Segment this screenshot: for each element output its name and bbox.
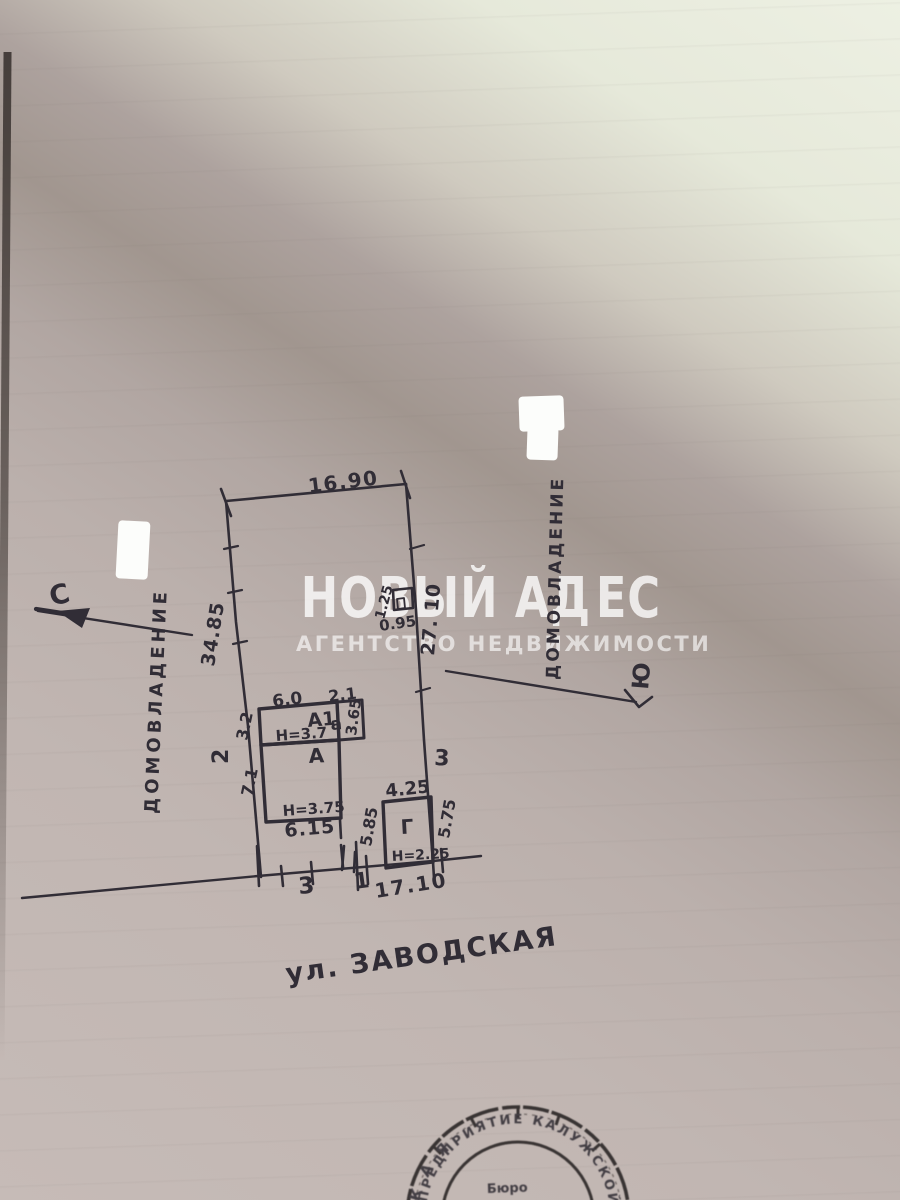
label-owner-right: ДОМОВЛАДЕНИЕ xyxy=(543,476,568,680)
photographed-plan-document: НОВЫЙ АД ЕС АГЕНТСТВО НЕДВИЖИМОСТИ xyxy=(0,0,900,1200)
label-neighbor-right-number: 3 xyxy=(434,746,450,772)
dim-g-right: 5.75 xyxy=(434,798,460,840)
label-owner-left: ДОМОВЛАДЕНИЕ xyxy=(141,588,172,815)
dim-plot-top: 16.90 xyxy=(307,466,380,498)
compass-south-label: Ю xyxy=(628,661,656,690)
dim-street-frontage: 17.10 xyxy=(373,868,449,903)
label-building-a: А xyxy=(308,743,325,768)
label-building-g: Г xyxy=(400,814,414,839)
dim-a1-width: 6.0 xyxy=(271,688,303,712)
dim-a-depth: 7.1 xyxy=(237,766,261,798)
dim-g-left: 5.85 xyxy=(356,806,382,848)
round-stamp: С К А Я ПРЕДПРИЯТИЕ КАЛУЖСКОЙ Бюро xyxy=(403,1107,629,1200)
dim-a-width: 6.15 xyxy=(284,816,337,842)
height-building-g: Н=2.25 xyxy=(391,846,450,865)
street-name: ул. ЗАВОДСКАЯ xyxy=(284,921,560,990)
height-building-a1: Н=3.7 xyxy=(275,723,328,745)
label-neighbor-left-number: 2 xyxy=(209,749,234,764)
dim-plot-left: 34.85 xyxy=(197,600,229,668)
stamp-center-text: Бюро xyxy=(487,1181,528,1197)
label-building-annex: а xyxy=(330,714,343,735)
dim-plot-right: 27. 10 xyxy=(417,582,445,656)
compass-north-label: С xyxy=(46,578,73,613)
dim-small-structure-width: 0.95 xyxy=(378,612,417,635)
dim-annex-depth: 3.65 xyxy=(342,697,365,736)
dim-a1-depth: 3.2 xyxy=(232,710,256,742)
site-plan-drawing: С Ю xyxy=(0,0,900,1200)
street-mark-left: 3 xyxy=(297,873,315,900)
